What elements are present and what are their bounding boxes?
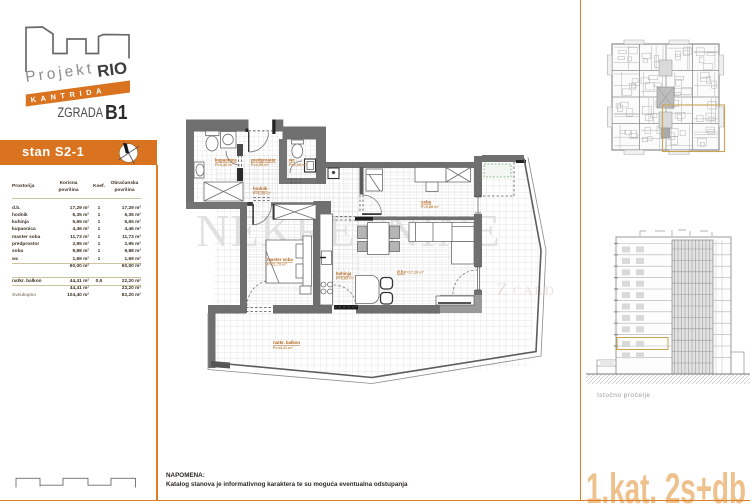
- svg-text:P=44,41 m²: P=44,41 m²: [273, 346, 294, 350]
- svg-text:P=6,35 m²: P=6,35 m²: [253, 192, 272, 196]
- svg-text:P=9,88 m²: P=9,88 m²: [421, 205, 440, 209]
- svg-text:Projekt: Projekt: [24, 60, 95, 86]
- svg-text:P=2,95 m²: P=2,95 m²: [251, 163, 270, 167]
- svg-text:RIO: RIO: [96, 59, 128, 81]
- svg-text:P=1,69 m²: P=1,69 m²: [289, 163, 308, 167]
- svg-text:hodnik: hodnik: [253, 186, 268, 191]
- svg-text:P=4,46 m²: P=4,46 m²: [215, 163, 234, 167]
- svg-text:P=5,65 m²: P=5,65 m²: [336, 277, 355, 281]
- svg-text:kuhinja: kuhinja: [336, 271, 352, 276]
- svg-text:P=17,29 m²: P=17,29 m²: [404, 271, 425, 275]
- svg-text:soba: soba: [421, 200, 432, 205]
- svg-text:KANTRIDA: KANTRIDA: [30, 86, 106, 105]
- svg-text:1.kat. 2s+db: 1.kat. 2s+db: [586, 465, 746, 504]
- svg-text:P=11,73 m²: P=11,73 m²: [267, 263, 287, 267]
- svg-text:B1: B1: [105, 102, 128, 124]
- svg-text:ZGRADA: ZGRADA: [58, 105, 104, 120]
- svg-text:kupaonica: kupaonica: [215, 158, 237, 163]
- svg-text:master soba: master soba: [267, 257, 293, 262]
- svg-text:predprostor: predprostor: [251, 158, 276, 163]
- svg-text:wc: wc: [288, 158, 295, 163]
- svg-text:natkr. balkon: natkr. balkon: [273, 340, 300, 345]
